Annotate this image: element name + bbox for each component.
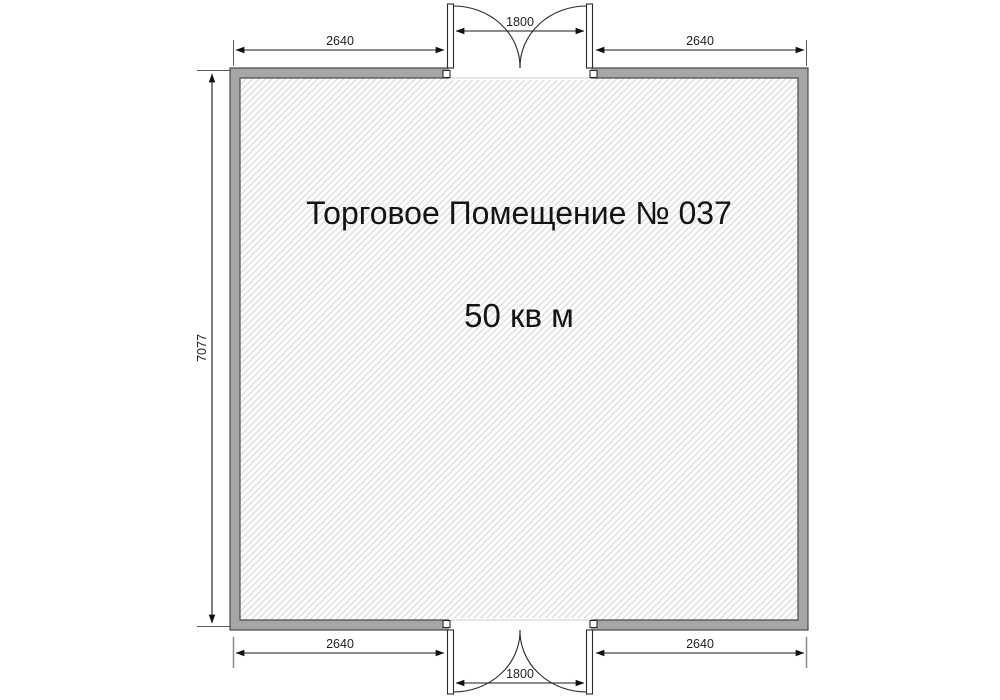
dimension-label-top-center: 1800 (506, 15, 534, 29)
dimension-label-left: 7077 (195, 334, 209, 362)
dimension-bottom-left: 2640 (234, 637, 445, 668)
dimension-label-bottom-left: 2640 (326, 637, 354, 651)
door-top-right-jamb (590, 71, 597, 78)
door-bottom-left-jamb (443, 621, 450, 628)
dimension-top-right: 2640 (596, 34, 807, 66)
room-floor-hatch (240, 78, 798, 620)
door-bottom-right-jamb (590, 621, 597, 628)
dimension-top-left: 2640 (234, 34, 445, 66)
door-top-right-leaf (587, 4, 593, 68)
dimension-label-bottom-right: 2640 (686, 637, 714, 651)
door-bottom-left-leaf (448, 630, 454, 694)
dimension-label-top-left: 2640 (326, 34, 354, 48)
room-area-label: 50 кв м (464, 297, 574, 334)
dimension-left: 7077 (195, 71, 231, 627)
room (230, 68, 808, 630)
dimension-label-bottom-center: 1800 (506, 667, 534, 681)
dimension-label-top-right: 2640 (686, 34, 714, 48)
room-title-label: Торговое Помещение № 037 (306, 195, 732, 231)
floorplan-canvas: 2640 1800 2640 7077 2640 1800 2640 Торго… (0, 0, 1000, 700)
dimension-bottom-right: 2640 (596, 637, 807, 668)
door-top-left-jamb (443, 71, 450, 78)
dimension-top-center: 1800 (456, 15, 584, 31)
dimension-bottom-center: 1800 (456, 667, 584, 683)
floorplan-drawing: 2640 1800 2640 7077 2640 1800 2640 Торго… (0, 0, 1000, 700)
door-bottom-right-leaf (587, 630, 593, 694)
door-top-left-leaf (448, 4, 454, 68)
